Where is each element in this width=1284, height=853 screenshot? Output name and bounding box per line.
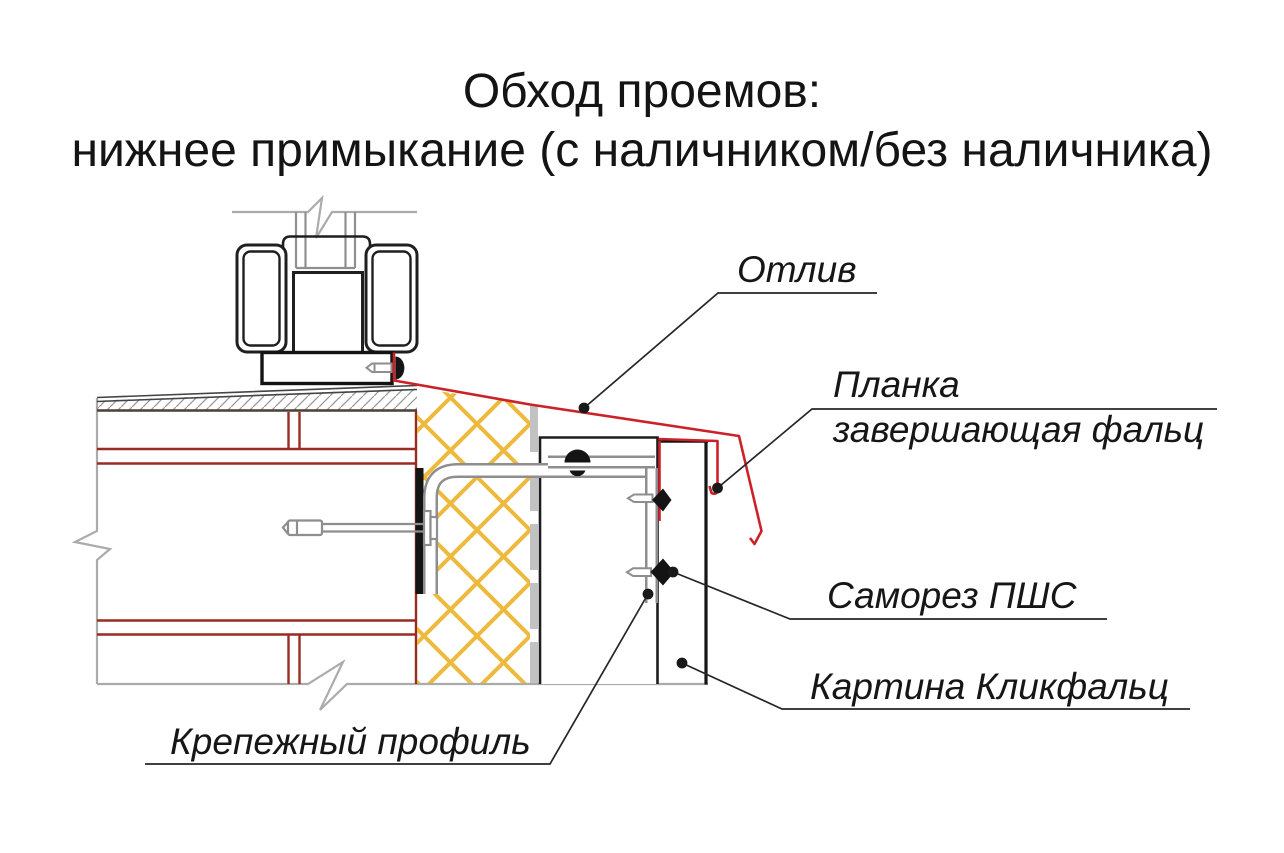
window-break-line <box>232 198 417 238</box>
dot-kartina <box>677 658 688 669</box>
label-krepezh: Крепежный профиль <box>170 721 531 762</box>
sill-seal-wedge <box>396 357 405 380</box>
window-frame <box>237 212 417 384</box>
technical-drawing: Отлив Планка завершающая фальц Саморез П… <box>0 0 1284 853</box>
sill-pin <box>367 364 392 373</box>
screw-pin-upper <box>628 495 653 503</box>
closure-strip-planka <box>659 439 718 494</box>
dot-planka <box>712 483 723 494</box>
frame-sash <box>294 273 363 354</box>
label-kartina: Картина Кликфальц <box>810 666 1169 707</box>
label-planka-line2: завершающая фальц <box>832 409 1204 450</box>
dot-otliv <box>579 403 590 414</box>
dot-krepezh <box>643 589 654 600</box>
brick-courses <box>97 411 416 684</box>
diagram-page: Обход проемов: нижнее примыкание (с нали… <box>0 0 1284 853</box>
label-samorez: Саморез ПШС <box>827 575 1077 616</box>
wall-anchor <box>283 511 437 545</box>
dot-samorez <box>668 567 679 578</box>
screw-pin-lower <box>627 568 651 576</box>
sill-hatch-strip <box>97 386 417 411</box>
label-planka-line1: Планка <box>833 364 960 405</box>
wall-left-edge <box>75 398 110 684</box>
label-otliv: Отлив <box>737 249 857 290</box>
